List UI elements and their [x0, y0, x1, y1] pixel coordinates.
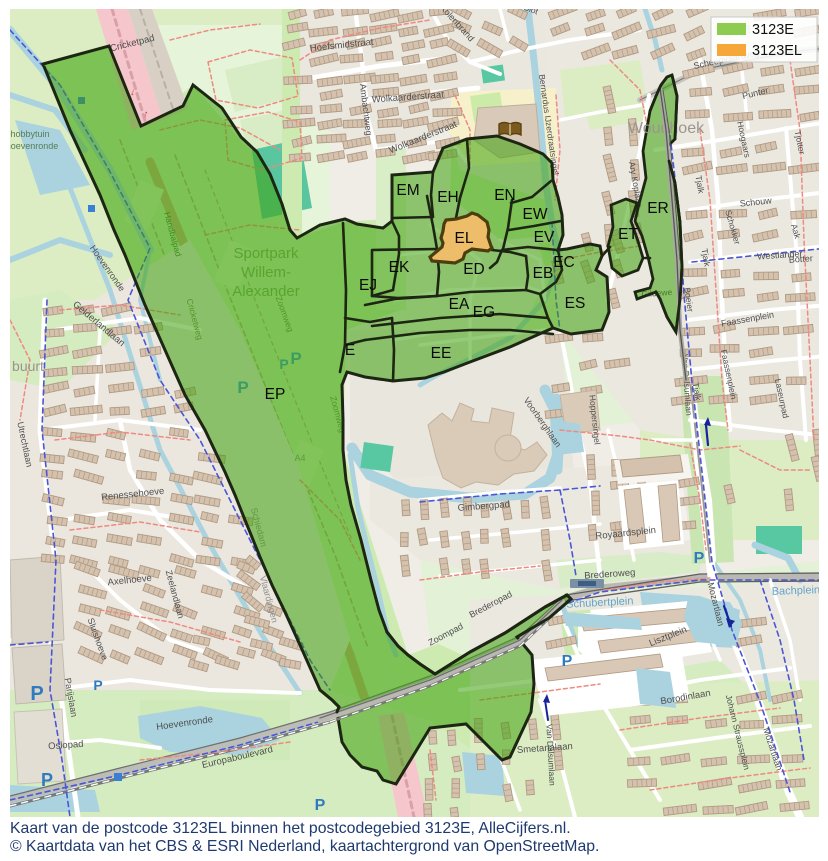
- svg-text:EA: EA: [449, 296, 470, 313]
- svg-text:EJ: EJ: [359, 277, 377, 294]
- svg-text:ER: ER: [647, 200, 669, 217]
- svg-text:EN: EN: [494, 187, 516, 204]
- svg-text:EP: EP: [265, 386, 286, 403]
- svg-text:ES: ES: [565, 295, 586, 312]
- svg-text:EE: EE: [431, 345, 452, 362]
- svg-text:P: P: [694, 550, 705, 567]
- svg-text:EV: EV: [534, 229, 555, 246]
- svg-text:Botter: Botter: [788, 253, 813, 265]
- svg-text:Bachplein: Bachplein: [772, 584, 821, 598]
- svg-text:3123EL: 3123EL: [752, 43, 802, 59]
- svg-text:P: P: [93, 677, 102, 693]
- svg-text:EH: EH: [437, 189, 459, 206]
- svg-text:EM: EM: [396, 182, 419, 199]
- svg-text:Kaart van de postcode 3123EL b: Kaart van de postcode 3123EL binnen het …: [10, 820, 571, 837]
- svg-text:P: P: [41, 770, 53, 790]
- svg-text:© Kaartdata van het CBS & ESRI: © Kaartdata van het CBS & ESRI Nederland…: [10, 838, 599, 855]
- svg-text:ET: ET: [618, 226, 638, 243]
- svg-text:EB: EB: [533, 265, 554, 282]
- svg-text:ED: ED: [463, 261, 485, 278]
- svg-text:E: E: [345, 342, 355, 359]
- svg-text:EL: EL: [455, 230, 474, 247]
- svg-text:EK: EK: [389, 259, 410, 276]
- svg-text:buurt: buurt: [12, 358, 44, 374]
- svg-text:P: P: [315, 797, 326, 814]
- svg-text:hobbytuin: hobbytuin: [10, 129, 49, 139]
- svg-text:P: P: [562, 653, 573, 670]
- svg-text:3123E: 3123E: [752, 22, 794, 38]
- svg-text:P: P: [30, 683, 43, 705]
- svg-text:EC: EC: [553, 254, 575, 271]
- svg-text:EG: EG: [473, 304, 495, 321]
- svg-text:hoevenronde: hoevenronde: [6, 141, 59, 151]
- svg-text:EW: EW: [523, 206, 548, 223]
